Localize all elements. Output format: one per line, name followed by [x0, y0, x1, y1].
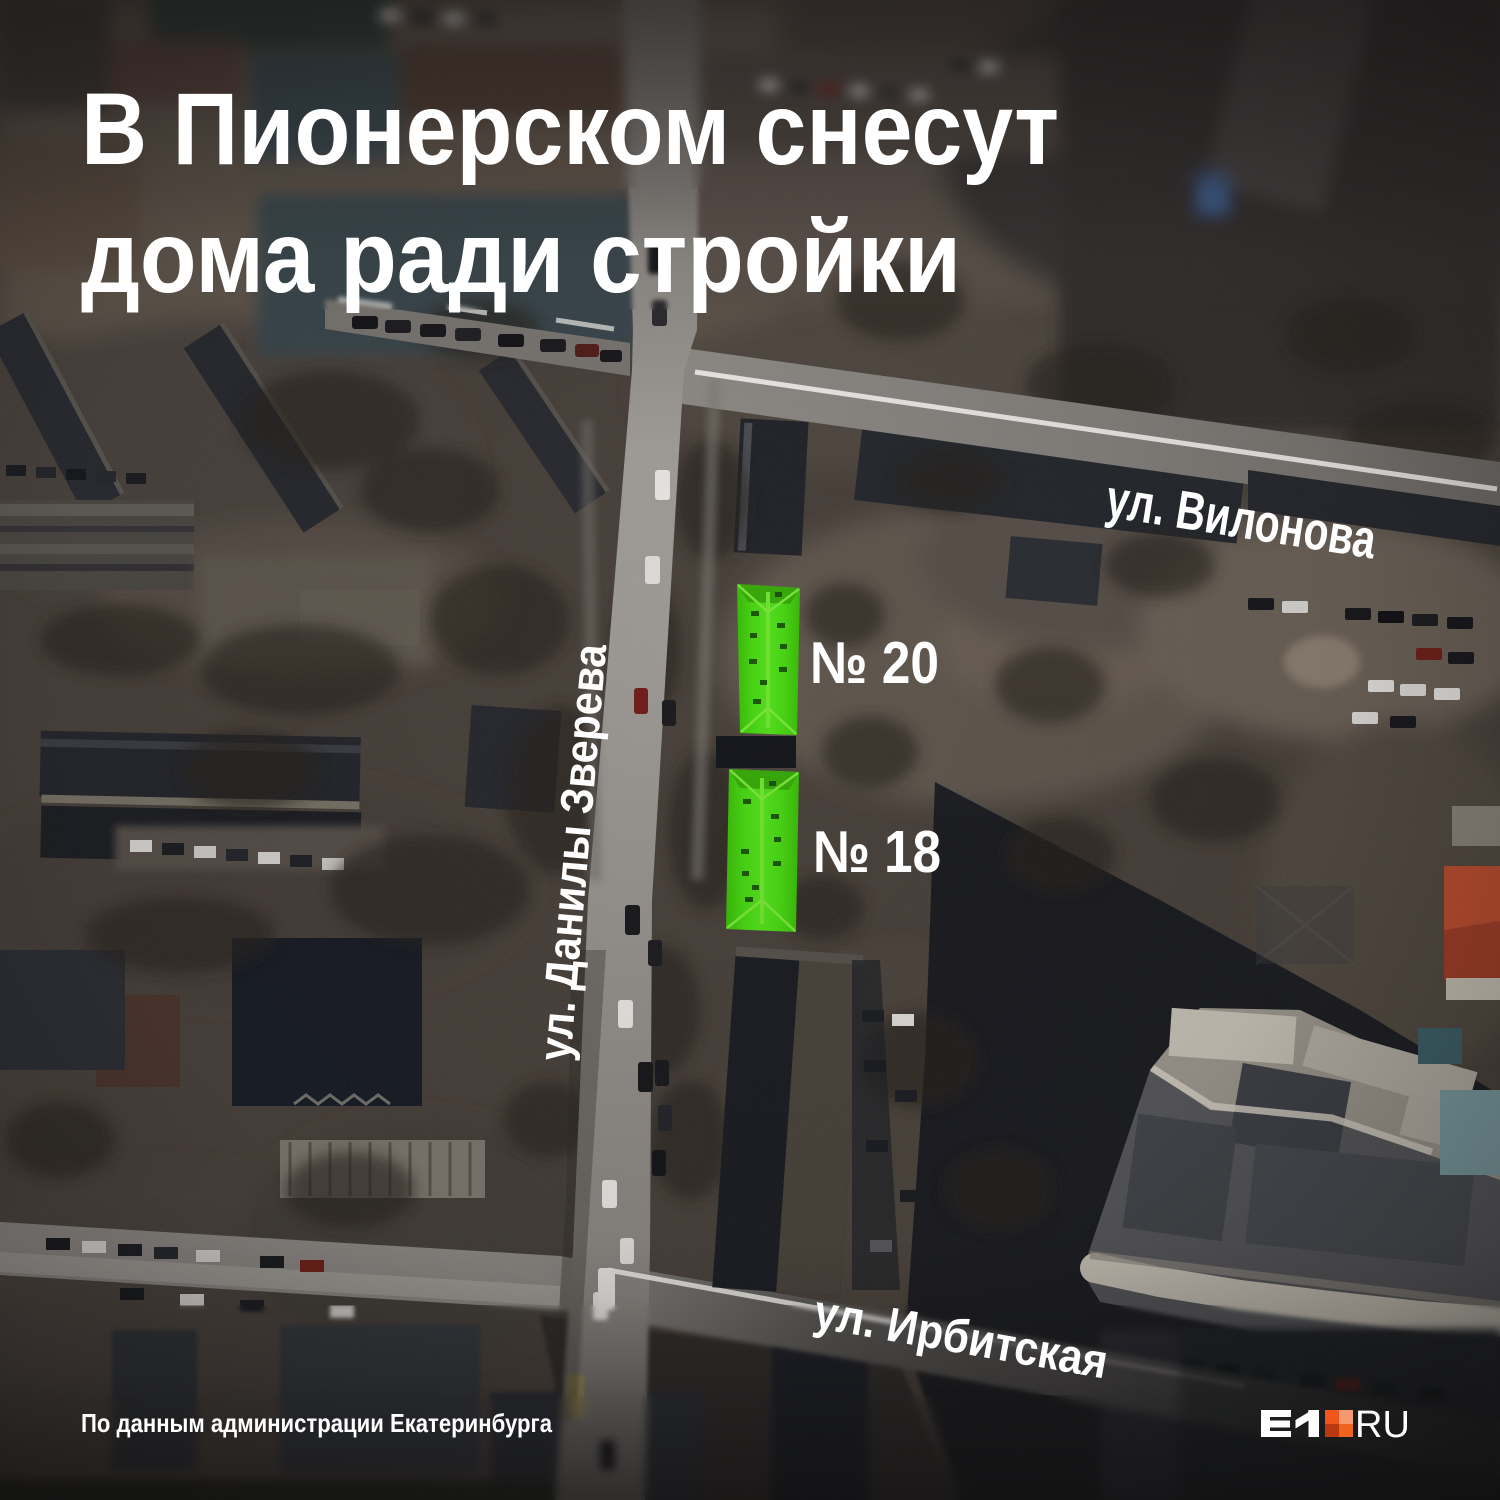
- svg-text:RU: RU: [1355, 1404, 1410, 1446]
- svg-text:В Пионерском снесут: В Пионерском снесут: [81, 72, 1059, 186]
- svg-text:дома ради стройки: дома ради стройки: [81, 200, 961, 314]
- svg-text:ул. Данилы Зверева: ул. Данилы Зверева: [528, 642, 616, 1063]
- svg-text:ул. Ирбитская: ул. Ирбитская: [810, 1286, 1112, 1390]
- svg-text:№ 20: № 20: [810, 630, 939, 696]
- svg-text:По данным администрации Екатер: По данным администрации Екатеринбурга: [81, 1408, 552, 1438]
- svg-text:ул. Вилонова: ул. Вилонова: [1102, 469, 1381, 571]
- svg-text:№ 18: № 18: [813, 819, 941, 885]
